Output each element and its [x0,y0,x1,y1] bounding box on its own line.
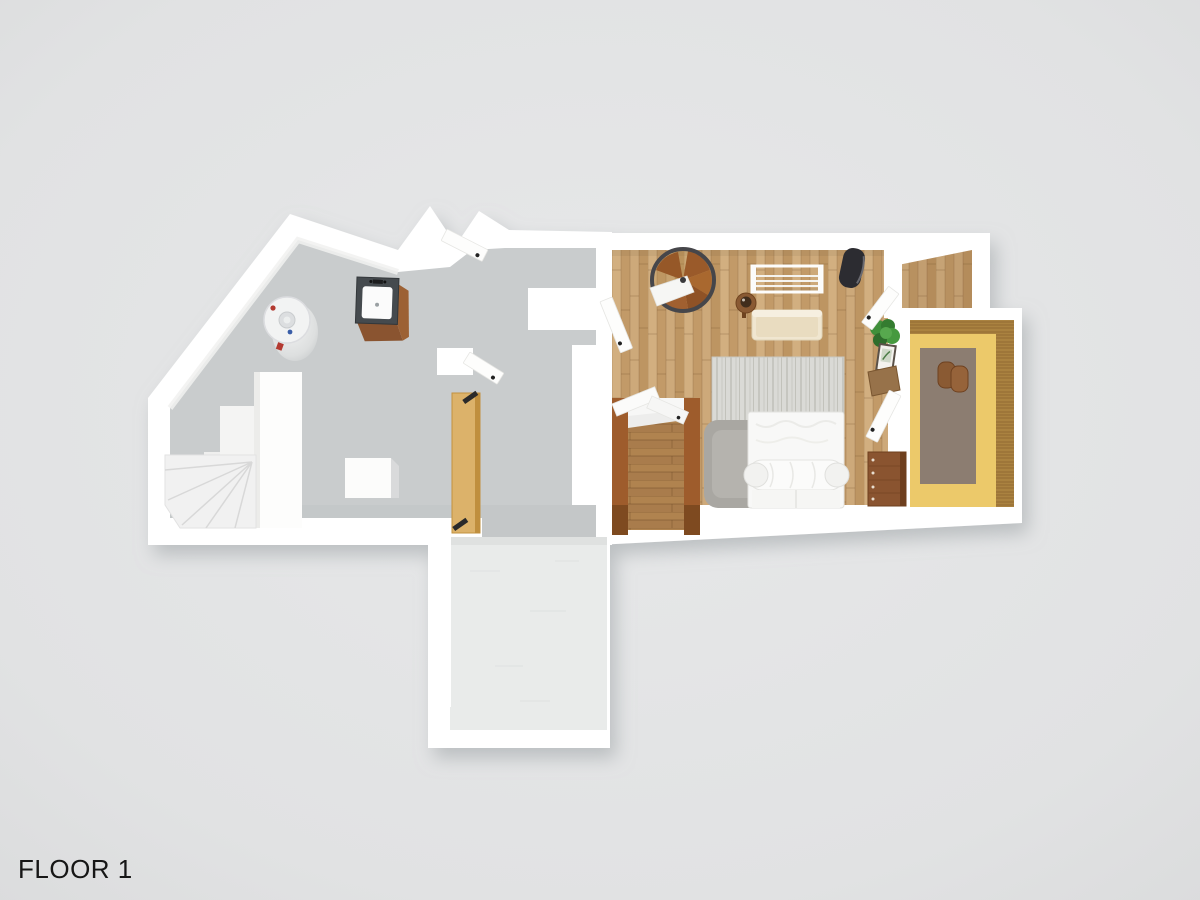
den-top-wall [898,308,1010,322]
double-bed [744,412,849,508]
patio-left-wall [440,537,451,707]
right-wing [612,240,1014,535]
patio-corner-wall-h [428,737,504,748]
stairwell-floor [628,412,684,530]
floor-cushions [938,362,968,392]
floor-plan [0,0,1200,900]
wall-stub-a [528,288,598,330]
stairwell [612,387,700,535]
leaning-door-panel [452,391,480,533]
cream-sofa [752,310,822,340]
hot-valve-dot [270,305,275,310]
hall-to-patio-floor [482,505,596,539]
patio [428,505,607,748]
spiral-staircase [650,249,714,311]
den-panel-top [910,320,1002,334]
den-room [898,308,1014,507]
storage-box [345,458,399,498]
brown-dresser [868,452,906,506]
den-panel-right [996,320,1014,507]
hall-right-wall [572,345,596,518]
wall-desk [868,366,900,396]
cold-valve-dot [288,330,293,335]
winder-stairs [165,455,256,528]
floor-label: FLOOR 1 [18,854,133,884]
